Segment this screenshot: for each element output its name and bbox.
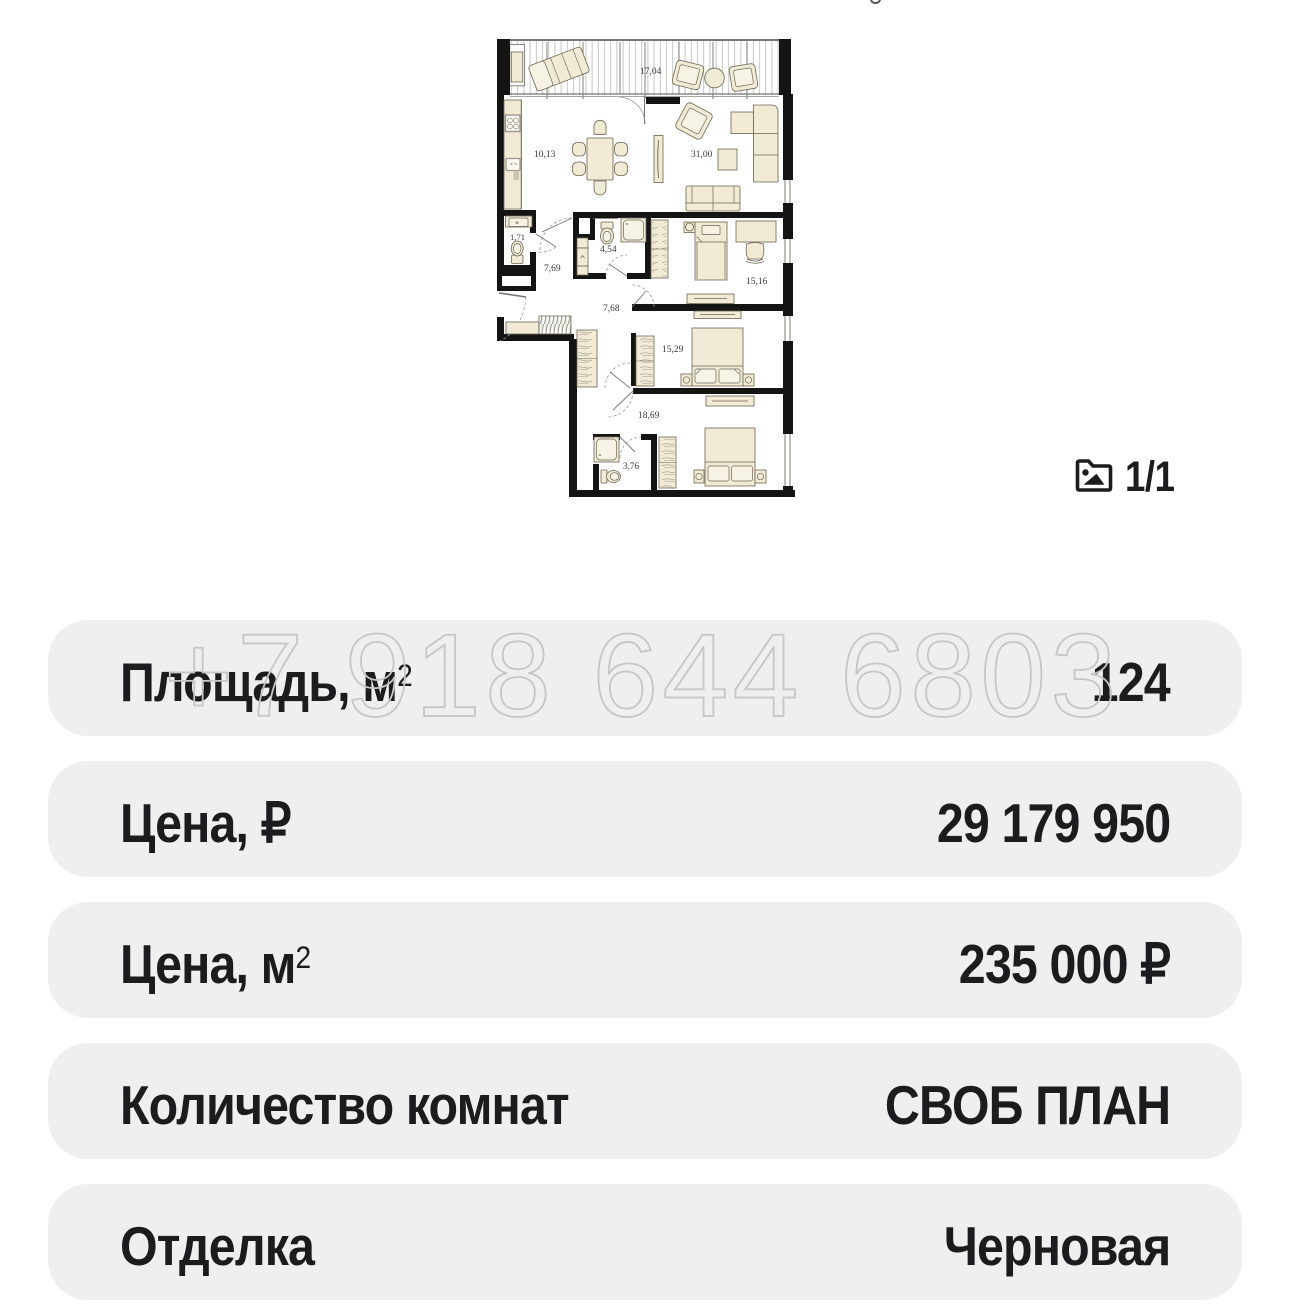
svg-text:17,04: 17,04 [640,67,662,77]
svg-text:15,16: 15,16 [746,277,768,287]
svg-text:1,71: 1,71 [510,232,525,242]
svg-text:18,69: 18,69 [638,411,660,421]
svg-text:4,54: 4,54 [600,245,617,255]
svg-text:10,13: 10,13 [534,150,556,160]
svg-text:3,76: 3,76 [623,461,639,471]
svg-text:31,00: 31,00 [691,150,713,160]
svg-text:15,29: 15,29 [662,345,684,355]
svg-text:7,69: 7,69 [544,264,561,274]
svg-text:7,68: 7,68 [603,304,620,314]
